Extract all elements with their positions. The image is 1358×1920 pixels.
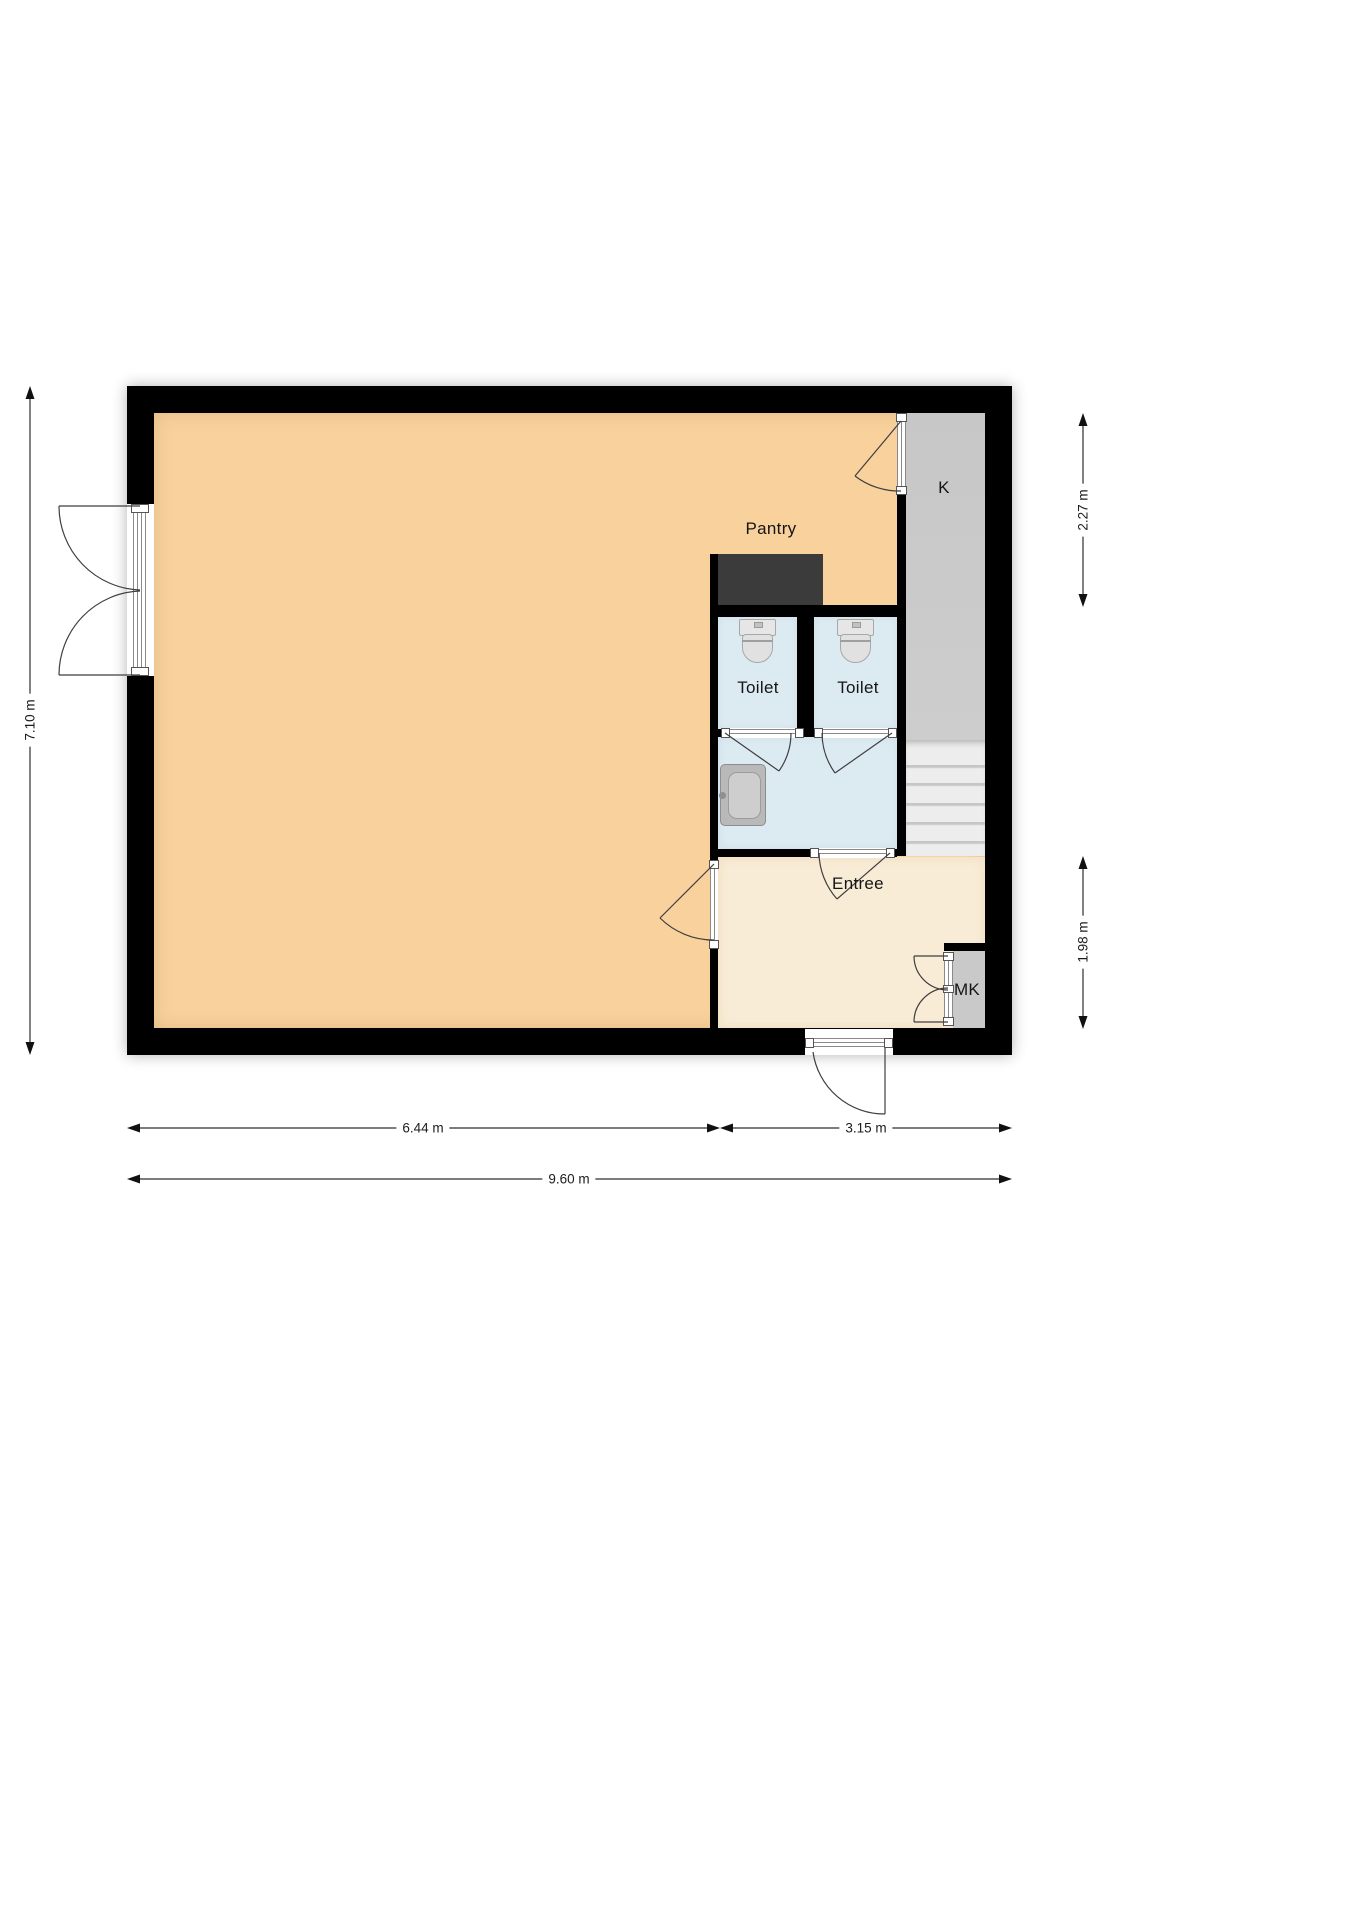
door-post <box>943 1017 954 1026</box>
room-label-toilet-right: Toilet <box>837 678 879 698</box>
door-post <box>709 940 719 949</box>
door-post <box>814 728 823 738</box>
door-post <box>884 1038 893 1048</box>
door-post <box>810 848 819 858</box>
wall-above-mk <box>944 943 985 951</box>
floor-plan: Pantry Toilet Toilet Entree K MK 7.10 m … <box>0 0 1358 1920</box>
stair-tread-line <box>906 765 985 767</box>
wall-above-toilets <box>710 605 906 617</box>
dimension-bottom-left: 6.44 m <box>396 1121 449 1136</box>
toilet-seat-line <box>742 640 773 642</box>
dimension-height-total: 7.10 m <box>23 693 38 746</box>
wall-main-entree <box>710 554 718 1028</box>
sink-faucet <box>719 792 726 799</box>
door-post <box>896 413 907 422</box>
stair-tread-line <box>906 803 985 805</box>
dimension-bottom-right: 3.15 m <box>839 1121 892 1136</box>
room-label-pantry: Pantry <box>746 519 797 539</box>
pantry-counter <box>718 554 823 605</box>
room-label-k: K <box>938 478 950 498</box>
door-post <box>131 667 149 676</box>
dimension-right-bottom: 1.98 m <box>1076 915 1091 968</box>
door-post <box>886 848 895 858</box>
room-label-mk: MK <box>954 980 980 1000</box>
door-post <box>795 728 804 738</box>
sink-basin <box>728 772 761 819</box>
toilet-flush-button <box>754 622 763 628</box>
stair-tread-line <box>906 783 985 785</box>
room-label-toilet-left: Toilet <box>737 678 779 698</box>
door-post <box>896 486 907 495</box>
door-post <box>805 1038 814 1048</box>
toilet-flush-button <box>852 622 861 628</box>
staircase <box>906 740 985 856</box>
stair-tread-line <box>906 822 985 824</box>
door-post <box>888 728 897 738</box>
room-label-entree: Entree <box>832 874 884 894</box>
door-post <box>943 952 954 961</box>
hall-door-frame <box>819 849 886 857</box>
door-post <box>131 504 149 513</box>
dimension-bottom-total: 9.60 m <box>542 1172 595 1187</box>
double-door-frame-left <box>133 504 147 676</box>
k-door-frame <box>897 413 906 495</box>
wall-between-toilets <box>797 617 814 737</box>
main-entree-door-frame <box>710 869 718 940</box>
door-post <box>943 985 954 993</box>
toilet-right-door-frame <box>823 729 888 737</box>
stair-tread-line <box>906 841 985 843</box>
dimension-right-top: 2.27 m <box>1076 483 1091 536</box>
toilet-seat-line <box>840 640 871 642</box>
toilet-left-door-frame <box>730 729 795 737</box>
room-k-closet <box>906 413 985 740</box>
exterior-door-frame <box>805 1038 893 1048</box>
door-post <box>721 728 730 738</box>
door-post <box>709 860 719 869</box>
